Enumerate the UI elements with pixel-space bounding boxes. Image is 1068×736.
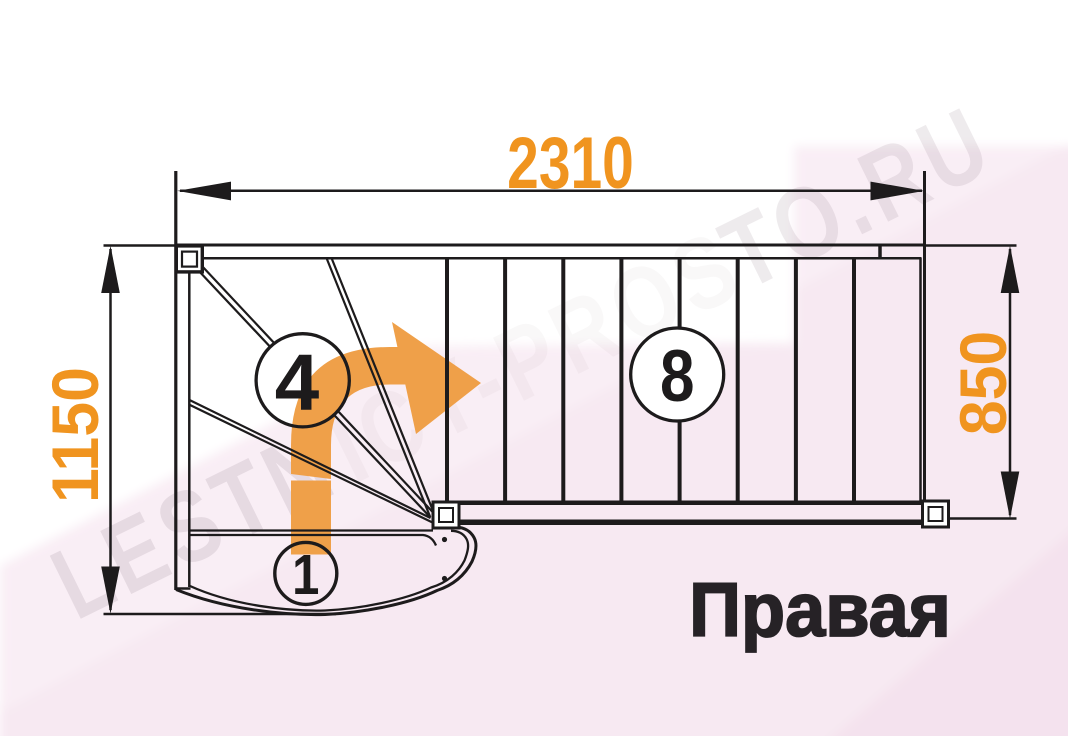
svg-text:850: 850 xyxy=(947,331,1021,436)
svg-text:8: 8 xyxy=(660,336,695,417)
svg-text:Правая: Правая xyxy=(689,567,951,652)
svg-text:4: 4 xyxy=(275,338,320,427)
svg-text:2310: 2310 xyxy=(507,122,634,203)
svg-text:1150: 1150 xyxy=(39,367,113,503)
svg-text:1: 1 xyxy=(292,544,319,607)
